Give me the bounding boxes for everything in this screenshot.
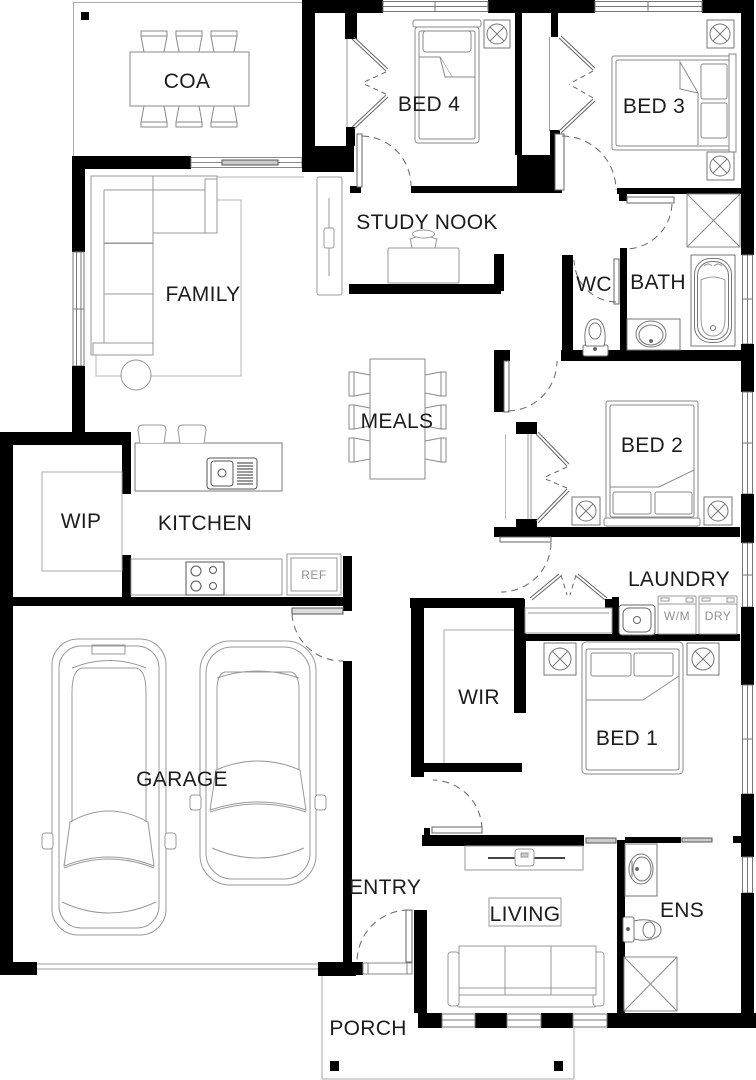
svg-text:BED 1: BED 1: [596, 727, 658, 750]
svg-text:WIP: WIP: [61, 510, 102, 533]
svg-text:BED 3: BED 3: [623, 95, 685, 118]
svg-text:KITCHEN: KITCHEN: [158, 512, 252, 535]
svg-text:LAUNDRY: LAUNDRY: [628, 568, 730, 591]
svg-text:LIVING: LIVING: [490, 903, 561, 926]
svg-text:ENTRY: ENTRY: [349, 876, 421, 899]
svg-text:GARAGE: GARAGE: [136, 768, 228, 791]
svg-text:REF: REF: [301, 568, 327, 582]
svg-text:STUDY NOOK: STUDY NOOK: [356, 211, 497, 234]
svg-text:WC: WC: [576, 273, 612, 296]
svg-text:DRY: DRY: [705, 609, 732, 623]
svg-text:W/M: W/M: [664, 609, 690, 623]
svg-text:COA: COA: [164, 70, 210, 93]
svg-text:MEALS: MEALS: [361, 410, 434, 433]
svg-text:ENS: ENS: [660, 899, 704, 922]
svg-text:BED 2: BED 2: [621, 434, 683, 457]
svg-text:BED 4: BED 4: [398, 93, 460, 116]
svg-text:PORCH: PORCH: [329, 1017, 406, 1040]
svg-text:BATH: BATH: [630, 271, 686, 294]
svg-text:FAMILY: FAMILY: [166, 283, 241, 306]
svg-text:WIR: WIR: [458, 686, 500, 709]
